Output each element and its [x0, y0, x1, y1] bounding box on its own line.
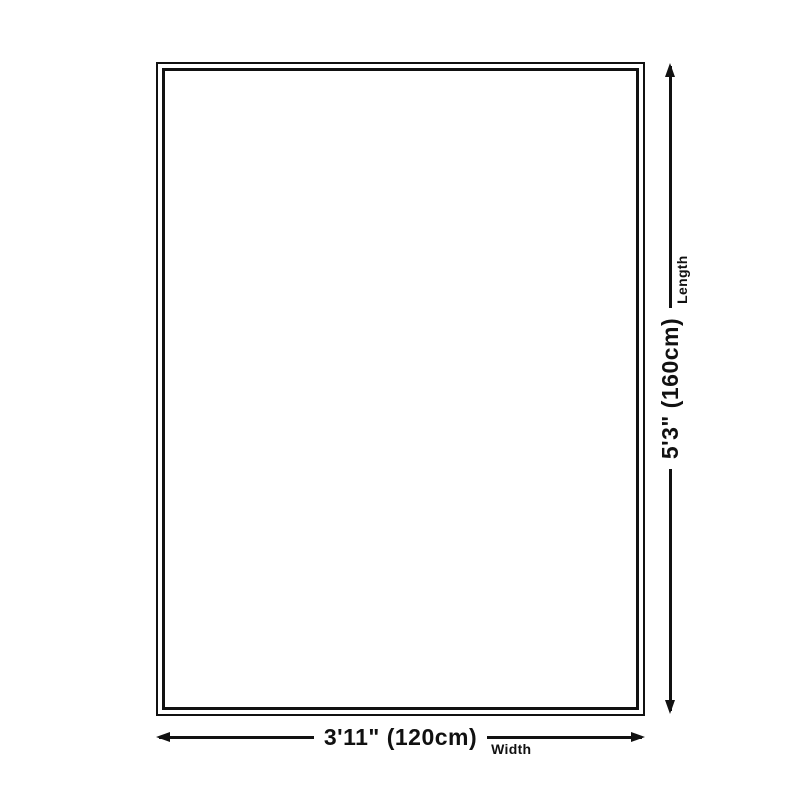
arrow-down-icon — [648, 469, 692, 714]
dimension-line — [487, 736, 642, 739]
length-value: 5'3" (160cm) — [659, 318, 682, 459]
dimension-line — [669, 66, 672, 308]
arrow-left-icon — [156, 715, 314, 759]
width-value: 3'11" (120cm) — [324, 726, 477, 749]
width-label: Width — [491, 742, 531, 756]
rug-outline-inner — [162, 68, 639, 710]
length-dimension: 5'3" (160cm) Length — [648, 63, 692, 714]
arrow-right-icon: Width — [487, 715, 645, 759]
dimension-line — [669, 469, 672, 711]
arrow-up-icon: Length — [648, 63, 692, 308]
dimension-line — [159, 736, 314, 739]
width-dimension: 3'11" (120cm) Width — [156, 715, 645, 759]
rug-outline-outer — [156, 62, 645, 716]
length-label: Length — [675, 255, 689, 303]
dimension-diagram: 3'11" (120cm) Width 5'3" (160cm) Length — [0, 0, 800, 800]
